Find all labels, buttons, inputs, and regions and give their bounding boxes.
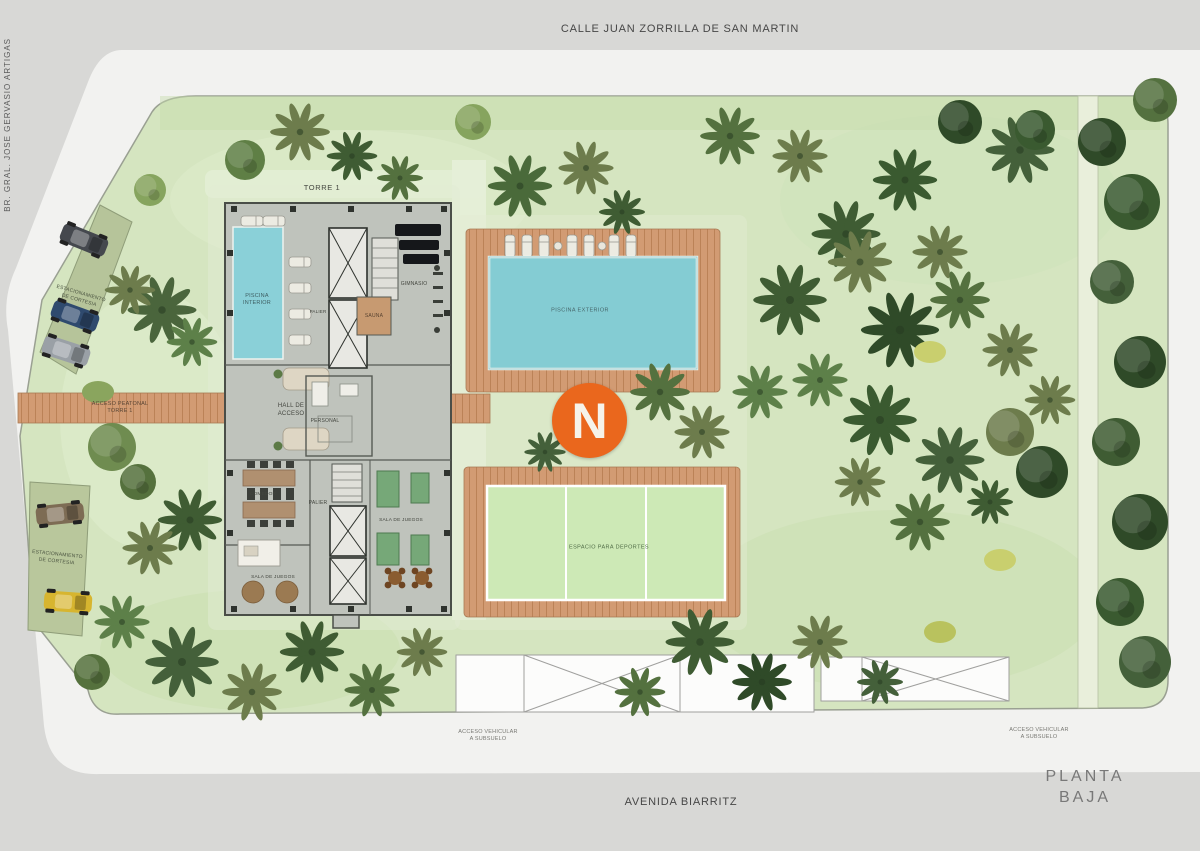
parking-south xyxy=(28,482,93,636)
building-torre-1 xyxy=(225,203,451,628)
sport-court xyxy=(487,486,725,600)
outdoor-pool xyxy=(489,257,697,369)
site-plan: CALLE JUAN ZORRILLA DE SAN MARTIN BR. GR… xyxy=(0,0,1200,851)
brand-logo: N xyxy=(552,383,627,458)
ramp-east xyxy=(821,657,1009,701)
east-path xyxy=(1078,96,1098,708)
street-label-west: BR. GRAL. JOSE GERVASIO ARTIGAS xyxy=(3,38,12,212)
brand-logo-letter: N xyxy=(571,396,607,446)
